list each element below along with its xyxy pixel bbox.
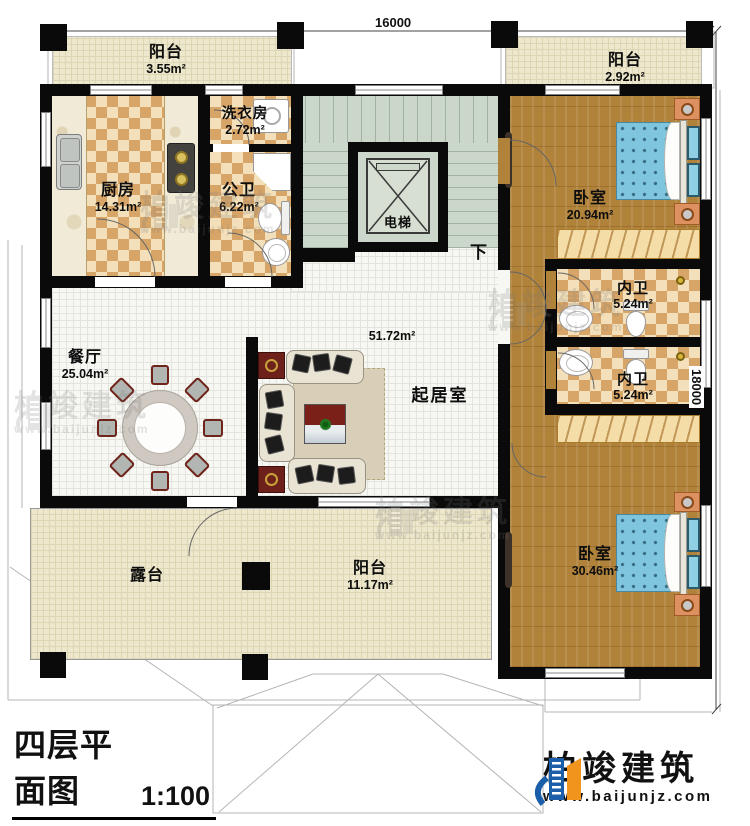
ensuite-bottom-toilet-tank [623, 349, 649, 359]
door-opening [225, 277, 271, 287]
wall [545, 259, 712, 269]
window [41, 402, 51, 450]
stairs-steps-top [305, 96, 496, 143]
laundry-label: 洗衣房2.72m² [198, 106, 292, 137]
balcony-top-left-label: 阳台3.55m² [116, 44, 216, 77]
living-name-label: 起居室 [380, 386, 500, 406]
wall [545, 337, 712, 347]
door-opening [546, 271, 556, 309]
bed-bottom-pillow-1 [687, 518, 700, 552]
wall [291, 248, 355, 262]
column [686, 21, 713, 48]
floor-plan-canvas: 阳台3.55m² 阳台2.92m² 洗衣房2.72m² 厨房14.31m² 公卫… [0, 0, 750, 826]
door-opening [546, 351, 556, 389]
dining-chair [151, 365, 169, 385]
bed-top-headboard [680, 120, 687, 204]
nightstand-top-1 [674, 98, 700, 120]
terrace-label: 露台 [112, 567, 182, 585]
balcony-bottom-label: 阳台11.17m² [315, 560, 425, 593]
window [701, 118, 711, 200]
ensuite-bottom-label: 内卫5.24m² [588, 371, 678, 403]
stairs-steps-left [303, 143, 348, 248]
company-name: 柏竣建筑 [543, 752, 712, 788]
coffee-table [304, 404, 346, 444]
door-opening [187, 497, 237, 507]
living-area-label: 51.72m² [352, 329, 432, 343]
window [545, 668, 625, 678]
public-sink [262, 238, 290, 266]
bedroom-top-label: 卧室20.94m² [535, 190, 645, 223]
side-table-bottom [258, 466, 285, 493]
bed-bottom-headboard [680, 512, 687, 596]
window [701, 505, 711, 587]
plan-scale: 1:100 [141, 781, 210, 812]
bed-bottom-sheet [664, 514, 680, 592]
nightstand-bottom-1 [674, 492, 700, 512]
plan-title: 四层平面图 [14, 720, 125, 812]
bedroom-bottom-tv [505, 532, 512, 588]
closet-bottom [557, 415, 700, 443]
column [277, 22, 304, 49]
closet-top [557, 229, 700, 259]
column [491, 21, 518, 48]
dining-chair [151, 471, 169, 491]
column [242, 654, 268, 680]
dining-chair [97, 419, 117, 437]
dimension-right: 18000 [689, 366, 704, 408]
nightstand-top-2 [674, 203, 700, 225]
company-logo: 柏竣建筑 www.baijunjz.com [533, 752, 712, 805]
window [41, 112, 51, 167]
bed-top-pillow-2 [687, 163, 700, 197]
elevator-label: 电梯 [366, 216, 430, 231]
balcony-door-window [545, 85, 620, 95]
company-website: www.baijunjz.com [543, 788, 712, 805]
side-table-top [258, 352, 285, 379]
dining-table-top [134, 402, 186, 454]
bed-bottom-pillow-2 [687, 555, 700, 589]
window [355, 85, 443, 95]
dining-label: 餐厅25.04m² [30, 349, 140, 382]
public-bath-label: 公卫6.22m² [194, 182, 284, 215]
window [41, 298, 51, 348]
kitchen-label: 厨房14.31m² [63, 182, 173, 215]
door-opening [498, 138, 510, 184]
title-block: 四层平面图 1:100 本层建筑面积：201.28m² 层高：3.2m [12, 720, 216, 826]
column [40, 652, 66, 678]
door-opening [213, 144, 249, 152]
dimension-top: 16000 [372, 15, 414, 30]
wall [40, 84, 303, 96]
column [40, 24, 67, 51]
ensuite-top-label: 内卫5.24m² [588, 280, 678, 312]
balcony-top-right-label: 阳台2.92m² [570, 52, 680, 85]
window [90, 85, 152, 95]
sliding-door [318, 497, 430, 507]
dining-chair [203, 419, 223, 437]
elevator-counterweight [376, 163, 420, 171]
column [242, 562, 270, 590]
bedroom-bottom-label: 卧室30.46m² [540, 546, 650, 579]
wall [246, 337, 258, 501]
window [205, 85, 243, 95]
door-opening [498, 270, 510, 344]
nightstand-bottom-2 [674, 594, 700, 616]
wall [545, 404, 712, 415]
stairs-steps-right [448, 143, 498, 248]
stairs-down-label: 下 [464, 243, 494, 263]
shower-head-bottom [676, 352, 685, 361]
door-opening [95, 277, 155, 287]
bed-top-pillow-1 [687, 126, 700, 160]
bed-top-sheet [664, 122, 680, 200]
